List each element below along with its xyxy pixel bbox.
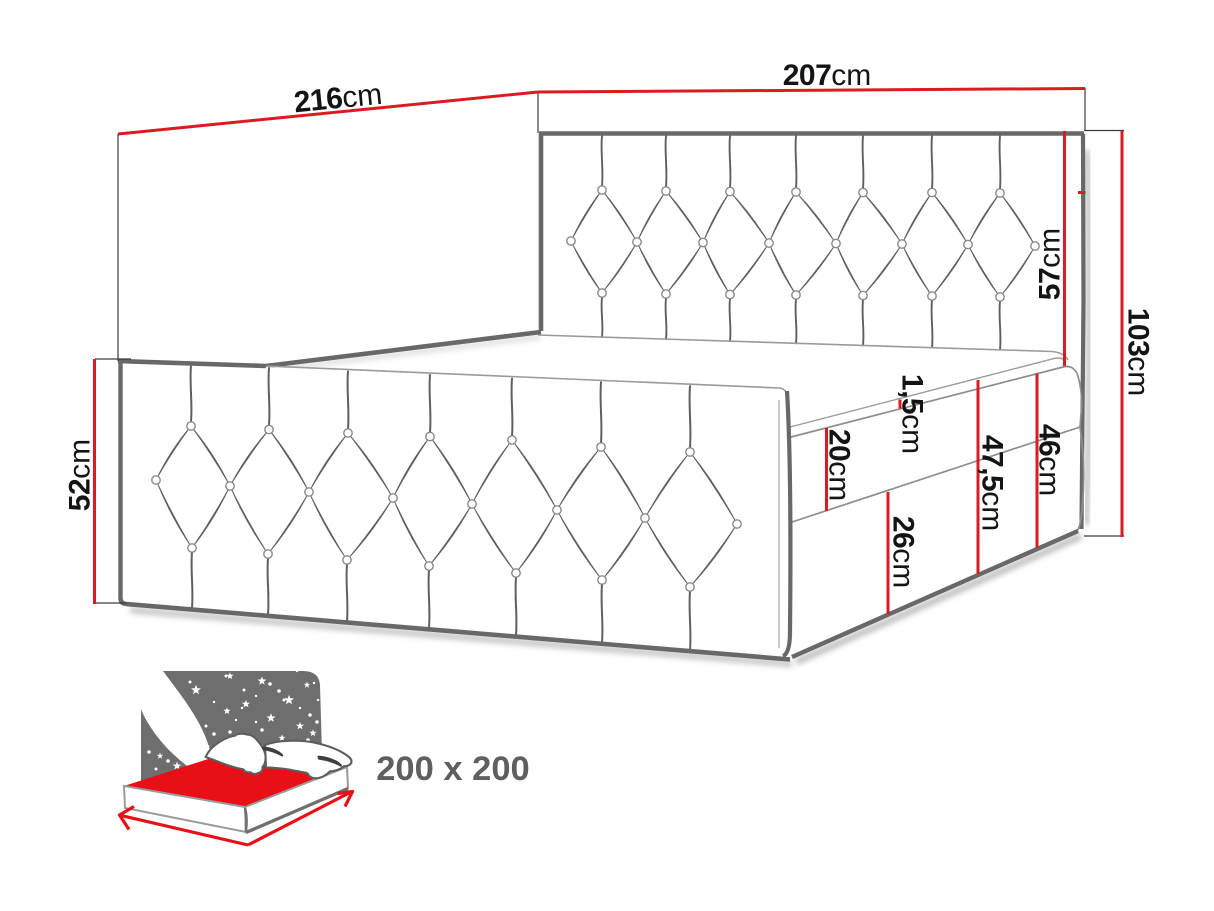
svg-text:26cm: 26cm <box>887 516 920 588</box>
svg-text:200 x 200: 200 x 200 <box>376 750 529 788</box>
svg-text:46cm: 46cm <box>1033 424 1066 496</box>
svg-text:47,5cm: 47,5cm <box>976 435 1009 531</box>
svg-text:20cm: 20cm <box>823 429 856 501</box>
svg-text:52cm: 52cm <box>64 439 97 511</box>
svg-text:207cm: 207cm <box>783 59 872 92</box>
svg-text:1,5cm: 1,5cm <box>896 374 929 454</box>
svg-text:57cm: 57cm <box>1034 228 1067 300</box>
svg-text:103cm: 103cm <box>1122 308 1155 397</box>
